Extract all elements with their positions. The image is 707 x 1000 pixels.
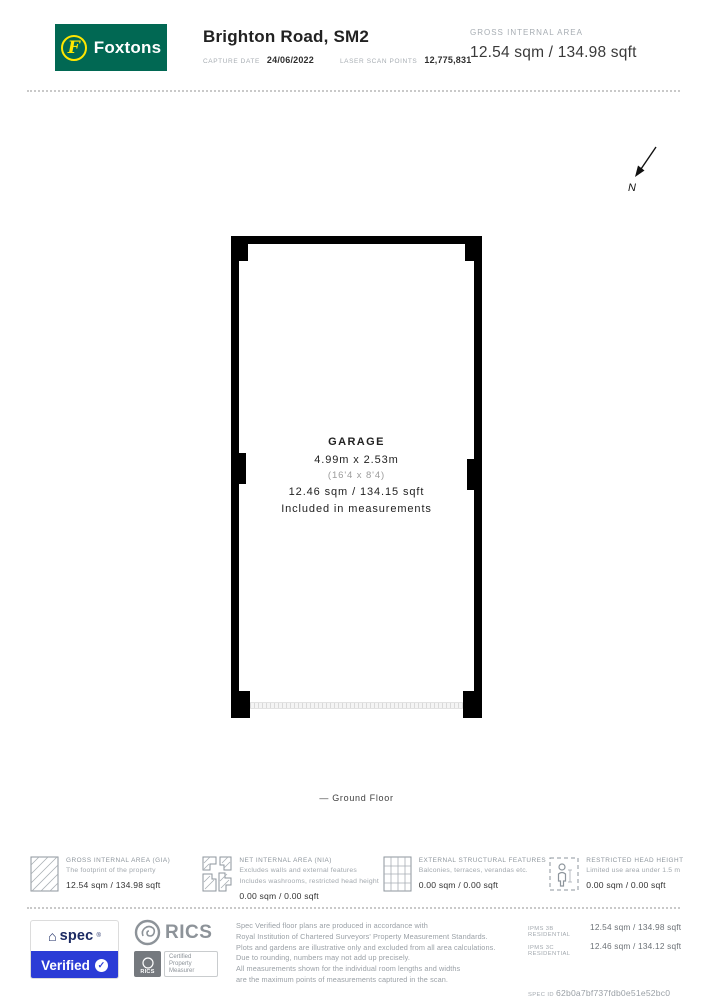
room-note: Included in measurements: [231, 503, 482, 515]
legend-value: 12.54 sqm / 134.98 sqft: [66, 880, 170, 890]
legend: GROSS INTERNAL AREA (GIA) The footprint …: [30, 856, 697, 901]
disclaimer-line: All measurements shown for the individua…: [236, 964, 524, 975]
room-area: 12.46 sqm / 134.15 sqft: [231, 486, 482, 498]
rics-lion-icon: [134, 919, 161, 946]
spec-id-label: SPEC ID: [528, 992, 556, 998]
rics-badge-text: Certified Property Measurer: [164, 951, 218, 977]
rics-badge-line: Measurer: [169, 968, 217, 975]
disclaimer-line: are the maximum points of measurements c…: [236, 975, 524, 986]
capture-date-value: 24/06/2022: [267, 55, 314, 65]
footer-separator: [27, 907, 680, 909]
rics-mini-wordmark: RICS: [140, 969, 154, 975]
check-icon: ✓: [95, 959, 108, 972]
page-title: Brighton Road, SM2: [203, 27, 471, 47]
ipms-3b-value: 12.54 sqm / 134.98 sqft: [590, 922, 681, 932]
ipms-3b-label: IPMS 3B RESIDENTIAL: [528, 926, 590, 938]
ipms-3c-row: IPMS 3C RESIDENTIAL 12.46 sqm / 134.12 s…: [528, 941, 681, 957]
verified-bar: Verified ✓: [31, 951, 118, 979]
laser-scan-value: 12,775,831: [424, 55, 471, 65]
grid-icon: [383, 856, 412, 892]
spec-verified-badge: ⌂ spec ® Verified ✓: [30, 920, 119, 979]
wall-top: [231, 236, 482, 244]
legend-item-esf: EXTERNAL STRUCTURAL FEATURES Balconies, …: [383, 856, 550, 901]
rics-certified-badge: RICS Certified Property Measurer: [134, 951, 230, 977]
wall-hatch-icon: [202, 856, 232, 892]
disclaimer-line: Plots and gardens are illustrative only …: [236, 943, 524, 954]
legend-title: EXTERNAL STRUCTURAL FEATURES: [419, 857, 546, 864]
rics-mini-lion-icon: [142, 957, 154, 969]
title-block: Brighton Road, SM2 CAPTURE DATE 24/06/20…: [203, 27, 471, 65]
legend-value: 0.00 sqm / 0.00 sqft: [239, 891, 379, 901]
rics-wordmark: RICS: [165, 922, 212, 944]
house-icon: ⌂: [48, 929, 56, 943]
disclaimer-line: Royal Institution of Chartered Surveyors…: [236, 932, 524, 943]
north-compass: N: [620, 140, 666, 198]
capture-date-label: CAPTURE DATE: [203, 58, 260, 65]
legend-desc: Balconies, terraces, verandas etc.: [419, 867, 546, 876]
spec-id-row: SPEC ID 62b0a7bf737fdb0e51e52bc0: [528, 988, 681, 998]
wall-post-top-left: [231, 236, 248, 261]
diagonal-hatch-icon: [30, 856, 59, 892]
floor-name-label: — Ground Floor: [231, 793, 482, 803]
legend-desc: Excludes walls and external features: [239, 867, 379, 876]
legend-value: 0.00 sqm / 0.00 sqft: [419, 880, 546, 890]
legend-desc: Includes washrooms, restricted head heig…: [239, 878, 379, 887]
disclaimer-line: Due to rounding, numbers may not add up …: [236, 953, 524, 964]
legend-title: RESTRICTED HEAD HEIGHT: [586, 857, 683, 864]
ipms-3b-row: IPMS 3B RESIDENTIAL 12.54 sqm / 134.98 s…: [528, 922, 681, 938]
rics-mini-logo: RICS: [134, 951, 161, 977]
legend-desc: The footprint of the property: [66, 867, 170, 876]
header-separator: [27, 90, 680, 92]
gia-value: 12.54 sqm / 134.98 sqft: [470, 44, 637, 62]
north-arrow-icon: N: [620, 140, 666, 198]
legend-title: GROSS INTERNAL AREA (GIA): [66, 857, 170, 864]
north-label: N: [628, 182, 636, 194]
garage-door-opening: [250, 702, 463, 709]
floorplan-page: F Foxtons Brighton Road, SM2 CAPTURE DAT…: [0, 0, 707, 1000]
wall-post-bottom-right: [463, 691, 482, 718]
ipms-block: IPMS 3B RESIDENTIAL 12.54 sqm / 134.98 s…: [528, 922, 681, 998]
person-dashed-icon: [549, 856, 579, 892]
rics-badge-line: Property: [169, 961, 217, 968]
disclaimer-line: Spec Verified floor plans are produced i…: [236, 921, 524, 932]
floorplan-drawing: GARAGE 4.99m x 2.53m (16'4 x 8'4) 12.46 …: [231, 236, 482, 718]
legend-value: 0.00 sqm / 0.00 sqft: [586, 880, 683, 890]
room-label: GARAGE 4.99m x 2.53m (16'4 x 8'4) 12.46 …: [231, 436, 482, 515]
gia-label: GROSS INTERNAL AREA: [470, 28, 637, 37]
capture-meta: CAPTURE DATE 24/06/2022 LASER SCAN POINT…: [203, 55, 471, 65]
room-dims-metric: 4.99m x 2.53m: [231, 454, 482, 466]
legend-title: NET INTERNAL AREA (NIA): [239, 857, 379, 864]
legend-item-rhh: RESTRICTED HEAD HEIGHT Limited use area …: [549, 856, 697, 901]
foxtons-logo-text: Foxtons: [94, 38, 162, 58]
disclaimer-text: Spec Verified floor plans are produced i…: [236, 921, 524, 986]
legend-item-nia: NET INTERNAL AREA (NIA) Excludes walls a…: [202, 856, 382, 901]
spec-wordmark: spec: [60, 928, 94, 944]
wall-post-bottom-left: [231, 691, 250, 718]
spec-logo: ⌂ spec ®: [31, 921, 118, 951]
laser-scan-label: LASER SCAN POINTS: [340, 58, 417, 65]
ipms-3c-value: 12.46 sqm / 134.12 sqft: [590, 941, 681, 951]
ipms-3c-label: IPMS 3C RESIDENTIAL: [528, 945, 590, 957]
foxtons-logo: F Foxtons: [55, 24, 167, 71]
foxtons-f-icon: F: [61, 35, 87, 61]
rics-logo-block: RICS RICS Certified Property Measurer: [134, 919, 230, 977]
room-name: GARAGE: [231, 436, 482, 448]
wall-post-top-right: [465, 236, 482, 261]
registered-mark: ®: [96, 933, 100, 939]
legend-desc: Limited use area under 1.5 m: [586, 867, 683, 876]
gross-internal-area-block: GROSS INTERNAL AREA 12.54 sqm / 134.98 s…: [470, 28, 637, 62]
spec-id-value: 62b0a7bf737fdb0e51e52bc0: [556, 988, 670, 998]
legend-item-gia: GROSS INTERNAL AREA (GIA) The footprint …: [30, 856, 202, 901]
verified-label: Verified: [41, 958, 90, 973]
room-dims-imperial: (16'4 x 8'4): [231, 470, 482, 481]
rics-badge-line: Certified: [169, 954, 217, 961]
